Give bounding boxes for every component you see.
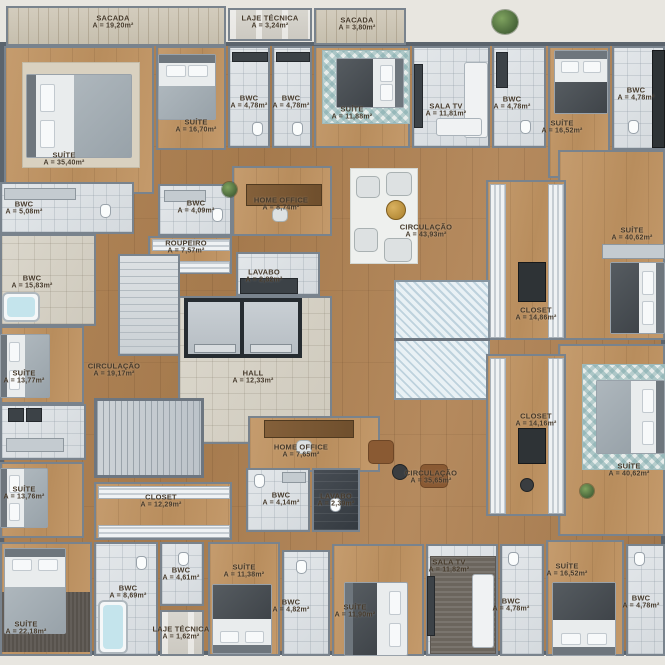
washer-icon bbox=[26, 408, 42, 422]
plant-icon bbox=[492, 10, 518, 34]
toilet-icon bbox=[634, 552, 645, 566]
desk-chair bbox=[272, 208, 288, 222]
closet-dresser bbox=[518, 262, 546, 302]
vanity bbox=[276, 52, 310, 62]
toilet-icon bbox=[254, 474, 265, 488]
home-office-desk bbox=[246, 184, 322, 206]
bed bbox=[0, 468, 48, 528]
toilet-icon bbox=[252, 122, 263, 136]
plant-icon bbox=[222, 182, 237, 197]
counter bbox=[6, 438, 64, 452]
closet-shelving bbox=[98, 486, 230, 499]
round-table bbox=[392, 464, 408, 480]
bed bbox=[158, 54, 216, 120]
bed bbox=[26, 74, 132, 158]
laje-tecnica-bottom bbox=[160, 610, 204, 656]
vanity bbox=[4, 188, 76, 200]
bed bbox=[554, 50, 608, 114]
home-office-desk bbox=[264, 420, 354, 438]
vanity bbox=[282, 472, 306, 483]
void-divider bbox=[394, 338, 490, 341]
balcony-sacada-1920 bbox=[6, 6, 226, 46]
round-table bbox=[386, 200, 406, 220]
toilet-icon bbox=[330, 498, 341, 512]
closet-shelving bbox=[490, 184, 506, 338]
vanity bbox=[164, 190, 206, 202]
vanity bbox=[232, 52, 268, 62]
toilet-icon bbox=[296, 560, 307, 574]
armchair bbox=[386, 172, 412, 196]
washer-icon bbox=[8, 408, 24, 422]
laje-tecnica-top bbox=[228, 8, 312, 41]
wardrobe-shelving bbox=[152, 239, 230, 251]
vanity bbox=[496, 52, 508, 88]
toilet-icon bbox=[520, 120, 531, 134]
dresser bbox=[602, 244, 665, 259]
bed bbox=[610, 262, 665, 334]
floor-plan: SACADAA = 19,20m²LAJE TÉCNICAA = 3,24m²S… bbox=[0, 0, 665, 665]
room-bwc-478-e bbox=[500, 544, 544, 656]
armchair bbox=[368, 440, 394, 464]
bed bbox=[336, 58, 404, 108]
bathtub bbox=[2, 292, 40, 322]
elevator-1 bbox=[184, 298, 246, 358]
cabinet bbox=[652, 50, 665, 148]
toilet-icon bbox=[178, 552, 189, 566]
staircase-upper bbox=[118, 254, 180, 356]
plant-icon bbox=[580, 484, 594, 498]
armchair bbox=[384, 238, 412, 262]
toilet-icon bbox=[508, 552, 519, 566]
balcony-sacada-380 bbox=[314, 8, 406, 45]
desk-chair bbox=[296, 440, 312, 454]
toilet-icon bbox=[136, 556, 147, 570]
sofa-chaise bbox=[436, 118, 482, 136]
toilet-icon bbox=[292, 122, 303, 136]
armchair bbox=[354, 228, 378, 252]
closet-shelving bbox=[548, 358, 564, 514]
sofa bbox=[472, 574, 494, 648]
tv-panel bbox=[427, 576, 435, 636]
closet-shelving bbox=[548, 184, 564, 338]
bed bbox=[344, 582, 408, 656]
bed bbox=[596, 380, 665, 454]
side-table bbox=[520, 478, 534, 492]
bed bbox=[0, 334, 50, 398]
closet-shelving bbox=[98, 525, 230, 538]
toilet-icon bbox=[628, 120, 639, 134]
bed bbox=[552, 582, 616, 656]
bed bbox=[212, 584, 272, 654]
toilet-icon bbox=[100, 204, 111, 218]
closet-shelving bbox=[490, 358, 506, 514]
staircase-lower bbox=[94, 398, 204, 478]
armchair bbox=[356, 176, 380, 198]
tv-panel bbox=[414, 64, 423, 128]
closet-dresser bbox=[518, 428, 546, 464]
bed bbox=[4, 548, 66, 634]
toilet-icon bbox=[212, 208, 223, 222]
lavabo-counter bbox=[240, 278, 298, 294]
armchair bbox=[420, 464, 448, 488]
elevator-2 bbox=[240, 298, 302, 358]
bathtub bbox=[98, 600, 128, 654]
room-bwc-478-f bbox=[626, 544, 665, 656]
